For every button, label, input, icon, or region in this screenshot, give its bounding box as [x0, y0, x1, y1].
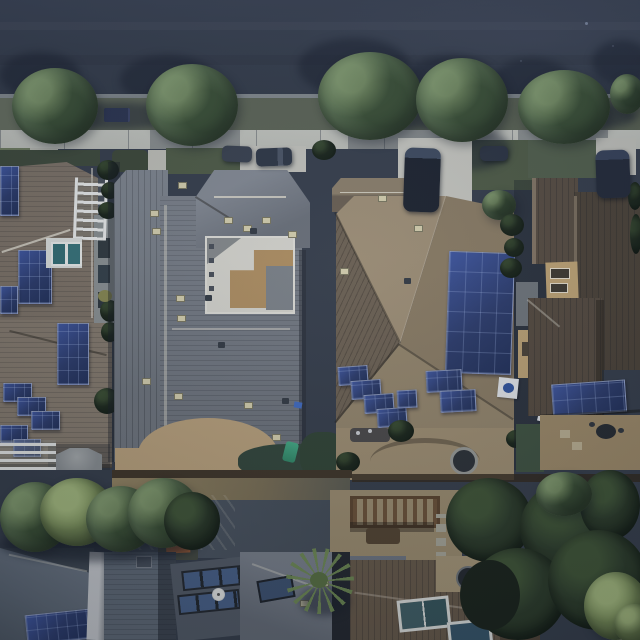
skylight	[378, 195, 387, 202]
street-tree	[416, 58, 508, 142]
fire-pit	[450, 447, 478, 475]
solar-panel-step	[31, 411, 60, 430]
property-hedge	[500, 258, 522, 278]
street-tree	[12, 68, 98, 144]
backyard-tree	[164, 492, 220, 550]
dark-van-driveway	[403, 147, 441, 212]
spa-cover-graphic	[503, 383, 514, 393]
front-walkway	[148, 150, 166, 172]
street-speck	[585, 22, 588, 25]
blue-tarp	[294, 401, 303, 408]
patio-chair	[589, 422, 595, 427]
stepping-stone	[572, 442, 582, 450]
parked-car	[222, 145, 253, 162]
solar-array	[0, 286, 18, 314]
street-tree-partial	[610, 74, 640, 114]
solar-array	[25, 609, 92, 640]
skylight	[152, 228, 161, 235]
parked-car	[256, 147, 293, 166]
curb-bush	[312, 140, 336, 160]
roof-vent	[282, 398, 289, 404]
picnic-table	[366, 528, 400, 544]
street-tree	[518, 70, 610, 144]
skylight	[177, 315, 186, 322]
edge-hedge	[630, 214, 640, 254]
roof-vent	[250, 228, 257, 234]
roof-vent	[205, 295, 212, 301]
roof-ridge	[214, 196, 286, 198]
skylight	[288, 231, 297, 238]
roof-vent	[404, 278, 411, 284]
large-tree	[580, 470, 640, 540]
backyard-shrub	[388, 420, 414, 442]
courtyard-planter	[209, 258, 214, 263]
white-slat-fence	[0, 440, 56, 470]
skylight	[414, 225, 423, 232]
stepping-stone-path	[436, 514, 446, 560]
solar-panel-block	[397, 389, 418, 408]
teal-spa	[51, 242, 67, 266]
skylight	[224, 217, 233, 224]
street-streak	[0, 22, 640, 30]
furniture-speck	[368, 429, 372, 433]
skylight	[262, 217, 271, 224]
teal-spa	[66, 242, 82, 266]
parked-car	[480, 146, 508, 161]
dark-van-far-right	[595, 149, 631, 198]
street-tree	[318, 52, 422, 140]
skylight	[150, 210, 159, 217]
patio-chair	[618, 428, 624, 433]
skylight	[142, 378, 151, 385]
stepping-stone	[560, 430, 570, 438]
roof-ridge	[340, 192, 412, 193]
courtyard-planter	[209, 244, 214, 249]
skylight	[272, 434, 281, 441]
street-tree	[146, 64, 238, 146]
roof-vent	[218, 342, 225, 348]
property-hedge	[500, 214, 524, 236]
property-hedge	[504, 238, 524, 257]
palm-tree-crown	[310, 572, 328, 588]
courtyard-planter	[209, 286, 214, 291]
skylight	[340, 268, 349, 275]
tree-highlight	[536, 472, 592, 516]
satellite-dish-center	[217, 593, 220, 596]
furniture-speck	[356, 431, 360, 435]
solar-array	[0, 166, 19, 216]
solar-panel-block	[439, 389, 476, 413]
front-lawn	[528, 140, 602, 178]
lit-roof-edge	[532, 178, 536, 264]
skylight	[176, 295, 185, 302]
trash-bins	[104, 108, 130, 122]
roof-ridge	[172, 328, 290, 330]
window	[550, 268, 570, 279]
deep-tree-shadow	[460, 560, 520, 630]
window	[550, 283, 568, 293]
skylight-pair	[396, 595, 451, 632]
courtyard-gray-structure	[266, 266, 293, 310]
far-right-roof-upper	[532, 178, 578, 264]
backyard-shrub	[336, 452, 360, 472]
back-wall	[112, 470, 352, 478]
courtyard-planter	[209, 272, 214, 277]
solar-array	[57, 323, 89, 385]
patio-table	[596, 424, 616, 439]
aerial-neighborhood-photo	[0, 0, 640, 640]
skylight	[178, 182, 187, 189]
skylight	[244, 402, 253, 409]
skylight	[174, 393, 183, 400]
center-house-right-eave-shadow	[299, 250, 306, 464]
